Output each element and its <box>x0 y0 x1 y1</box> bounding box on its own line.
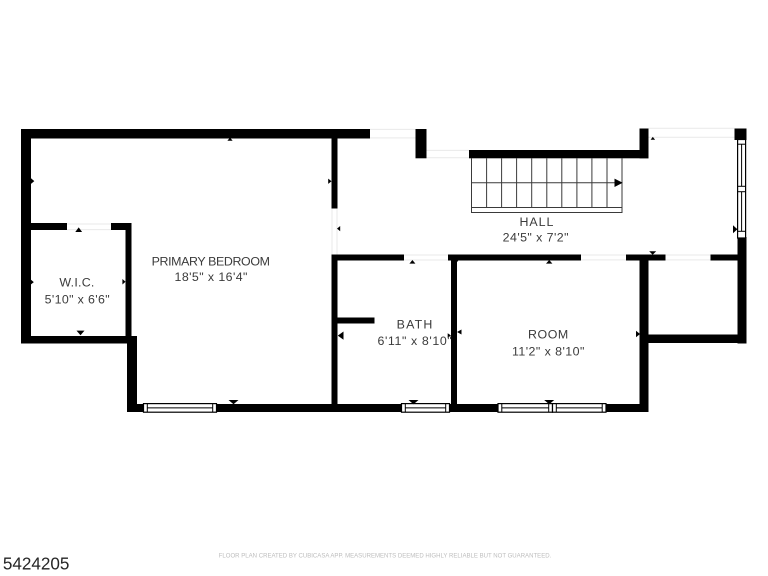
svg-text:FLOOR PLAN CREATED BY CUBICASA: FLOOR PLAN CREATED BY CUBICASA APP. MEAS… <box>219 554 552 560</box>
svg-text:PRIMARY BEDROOM: PRIMARY BEDROOM <box>152 254 270 268</box>
svg-text:11'2" x 8'10": 11'2" x 8'10" <box>512 345 585 359</box>
svg-text:6'11" x 8'10": 6'11" x 8'10" <box>377 334 452 348</box>
svg-text:ROOM: ROOM <box>528 328 569 342</box>
svg-text:HALL: HALL <box>519 215 554 229</box>
svg-text:W.I.C.: W.I.C. <box>59 276 94 290</box>
svg-text:BATH: BATH <box>397 317 434 331</box>
svg-text:18'5" x 16'4": 18'5" x 16'4" <box>175 270 248 284</box>
svg-text:5424205: 5424205 <box>3 554 70 573</box>
svg-text:5'10" x 6'6": 5'10" x 6'6" <box>45 292 110 306</box>
svg-text:24'5" x 7'2": 24'5" x 7'2" <box>503 231 569 245</box>
